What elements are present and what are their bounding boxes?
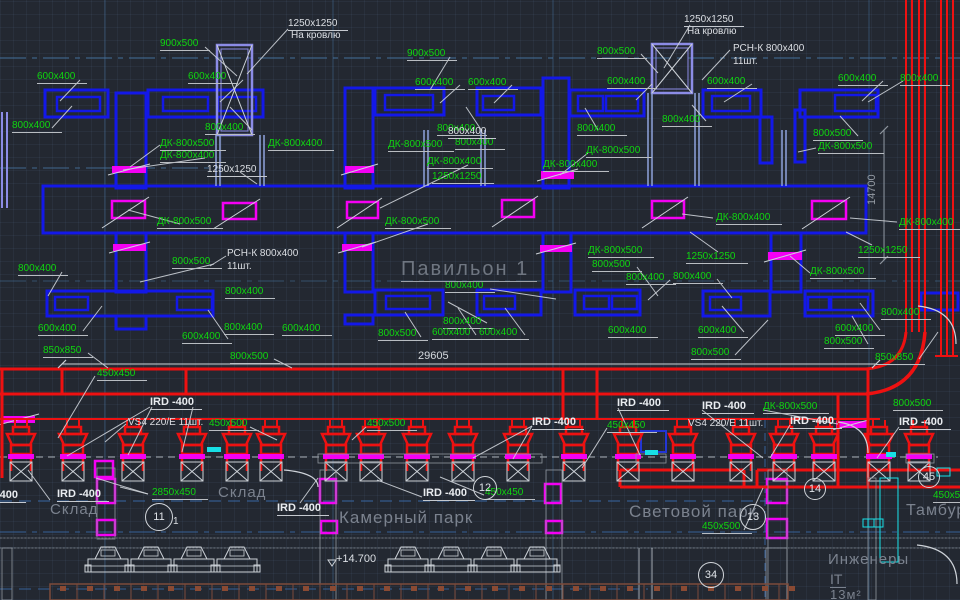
diffuser-label: IRD -400 bbox=[532, 416, 584, 430]
duct-size-label: 900x500 bbox=[407, 48, 457, 61]
note-label: 11шт. bbox=[227, 261, 252, 273]
duct-size-label: 450x500 bbox=[209, 418, 259, 431]
duct-size-label: 800x500 bbox=[592, 259, 642, 272]
note-label: VS4 220/E 11шт. bbox=[688, 418, 763, 430]
plan-labels-layer: 900x500600x400600x400800x400800x400900x5… bbox=[0, 0, 960, 600]
room-label: Световой парк bbox=[629, 502, 757, 522]
duct-size-label: 800x500 bbox=[691, 347, 741, 360]
duct-size-label: 1250x1250 bbox=[858, 245, 920, 258]
duct-size-label: ДК-800x400 bbox=[899, 217, 960, 230]
diffuser-label: IRD -400 bbox=[150, 396, 202, 410]
axis-bubble: 14 bbox=[804, 478, 826, 500]
diffuser-label: IRD -400 bbox=[702, 400, 754, 414]
dimension-label: 14700 bbox=[866, 174, 879, 205]
duct-size-label: 800x500 bbox=[172, 256, 222, 269]
diffuser-label: IRD -400 bbox=[617, 397, 669, 411]
cad-viewport: 900x500600x400600x400800x400800x400900x5… bbox=[0, 0, 960, 600]
room-label: Тамбур bbox=[906, 502, 960, 520]
duct-size-label: 600x400 bbox=[608, 325, 658, 338]
duct-size-label: 800x400 bbox=[455, 137, 505, 150]
note-label: +14.700 bbox=[336, 553, 376, 566]
room-label: Камерный парк bbox=[339, 508, 473, 528]
duct-size-label: 800x400 bbox=[900, 73, 950, 86]
note-label: VS4 220/E 11шт. bbox=[128, 417, 203, 429]
duct-size-label: 450x500 bbox=[933, 490, 960, 503]
duct-size-label: ДК-800x400 bbox=[543, 159, 609, 172]
duct-size-label: ДК-800x400 bbox=[160, 150, 226, 163]
duct-size-label: 600x400 bbox=[188, 71, 238, 84]
duct-size-label: 800x500 bbox=[378, 328, 428, 341]
duct-size-label: 450x500 bbox=[367, 418, 417, 431]
note-label: На кровлю bbox=[291, 30, 340, 42]
duct-size-label: ДК-800x500 bbox=[763, 401, 829, 414]
axis-bubble: 11 bbox=[145, 503, 173, 531]
duct-size-label: 600x400 bbox=[432, 327, 482, 340]
duct-size-label: 600x400 bbox=[38, 323, 88, 336]
axis-bubble: 45 bbox=[918, 466, 940, 488]
dimension-note-label: 1250x1250 bbox=[684, 14, 744, 27]
note-label: 11шт. bbox=[733, 56, 758, 68]
axis-bubble: 34 bbox=[698, 562, 724, 588]
axis-bubble: 13 bbox=[740, 504, 766, 530]
diffuser-label: IRD -400 bbox=[899, 416, 951, 430]
diffuser-label: IRD -400 bbox=[277, 502, 329, 516]
duct-size-label: 800x400 bbox=[881, 307, 931, 320]
duct-size-label: 600x400 bbox=[468, 77, 518, 90]
dimension-note-label: 1250x1250 bbox=[207, 164, 267, 177]
note-label: На кровлю bbox=[687, 26, 736, 38]
duct-size-label: ДК-800x500 bbox=[388, 139, 454, 152]
duct-size-label: 1250x1250 bbox=[686, 251, 748, 264]
duct-size-label: ДК-800x400 bbox=[268, 138, 334, 151]
diffuser-label: IRD -400 bbox=[0, 489, 26, 503]
duct-size-label: 450x450 bbox=[607, 420, 657, 433]
note-label: РСН-К 800x400 bbox=[227, 248, 298, 260]
duct-size-label: 800x400 bbox=[12, 120, 62, 133]
duct-size-label: ДК-800x400 bbox=[427, 156, 493, 169]
duct-size-label: 800x500 bbox=[893, 398, 943, 411]
dimension-note-label: 1250x1250 bbox=[288, 18, 348, 31]
duct-size-label: 800x400 bbox=[673, 271, 723, 284]
duct-size-label: 800x400 bbox=[205, 122, 255, 135]
duct-size-label: 600x400 bbox=[838, 73, 888, 86]
duct-size-label: 600x400 bbox=[479, 327, 529, 340]
duct-size-label: 800x400 bbox=[224, 322, 274, 335]
duct-size-label: 850x850 bbox=[875, 352, 925, 365]
room-label: Склад bbox=[50, 501, 98, 518]
room-label: Склад bbox=[218, 484, 266, 501]
duct-size-label: 600x400 bbox=[698, 325, 748, 338]
duct-size-label: ДК-800x500 bbox=[385, 216, 451, 229]
room-label: IT bbox=[830, 571, 846, 588]
duct-size-label: ДК-800x400 bbox=[716, 212, 782, 225]
duct-size-label: 800x500 bbox=[597, 46, 647, 59]
duct-size-label: 450x450 bbox=[97, 368, 147, 381]
duct-size-label: 800x500 bbox=[813, 128, 863, 141]
duct-size-label: 600x400 bbox=[282, 323, 332, 336]
duct-size-label: 800x400 bbox=[225, 286, 275, 299]
duct-size-label: ДК-800x500 bbox=[588, 245, 654, 258]
duct-size-label: 850x850 bbox=[43, 345, 93, 358]
duct-size-label: ДК-800x500 bbox=[810, 266, 876, 279]
note-label: 1 bbox=[173, 516, 179, 528]
diffuser-label: IRD -400 bbox=[57, 488, 109, 502]
duct-size-label: 800x500 bbox=[824, 336, 874, 349]
dimension-label: 29605 bbox=[418, 350, 449, 363]
duct-size-label: 600x400 bbox=[37, 71, 87, 84]
duct-size-label: 1250x1250 bbox=[432, 171, 494, 184]
note-label: РСН-К 800x400 bbox=[733, 43, 804, 55]
duct-size-label: 900x500 bbox=[160, 38, 210, 51]
duct-size-label: ДК-800x500 bbox=[157, 216, 223, 229]
dimension-note-label: 800x400 bbox=[448, 126, 496, 139]
duct-size-label: 800x400 bbox=[577, 123, 627, 136]
axis-bubble: 12 bbox=[473, 476, 497, 500]
duct-size-label: 800x400 bbox=[18, 263, 68, 276]
duct-size-label: 600x400 bbox=[607, 76, 657, 89]
diffuser-label: IRD -400 bbox=[423, 487, 475, 501]
duct-size-label: ДК-800x500 bbox=[160, 138, 226, 151]
duct-size-label: ДК-800x500 bbox=[586, 145, 652, 158]
zone-label: Павильон 1 bbox=[401, 258, 537, 282]
room-label: 13м² bbox=[830, 588, 862, 600]
duct-size-label: 600x400 bbox=[835, 323, 885, 336]
diffuser-label: IRD -400 bbox=[790, 415, 842, 429]
room-label: Инженеры bbox=[828, 551, 909, 568]
duct-size-label: 600x400 bbox=[707, 76, 757, 89]
duct-size-label: 2850x450 bbox=[152, 487, 208, 500]
duct-size-label: 800x400 bbox=[662, 114, 712, 127]
duct-size-label: 600x400 bbox=[415, 77, 465, 90]
duct-size-label: 800x400 bbox=[626, 272, 676, 285]
duct-size-label: ДК-800x500 bbox=[818, 141, 884, 154]
duct-size-label: 800x500 bbox=[230, 351, 280, 364]
